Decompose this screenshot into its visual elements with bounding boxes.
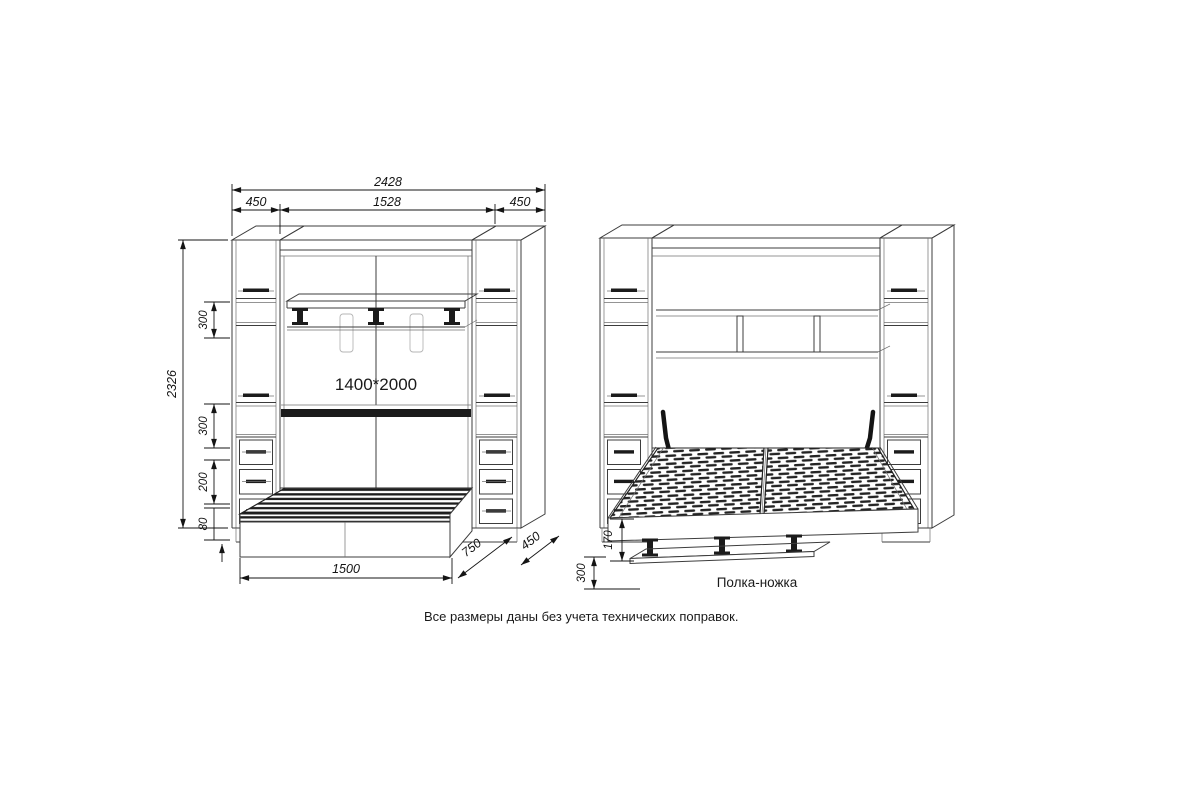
- dim-total-width-label: 2428: [373, 175, 402, 189]
- bed-leg: [642, 539, 658, 557]
- niche-shelf-unit: [656, 304, 890, 358]
- closed-left-cabinet-shelves: [236, 289, 276, 524]
- dim-total-height: 2326: [165, 240, 228, 528]
- dim-platform-height-label: 170: [603, 530, 615, 550]
- shelf-bracket: [292, 308, 308, 325]
- dim-center-width-label: 1528: [373, 195, 401, 209]
- closed-bed-base-bench: [240, 488, 472, 557]
- bed-size-label: 1400*2000: [335, 375, 417, 394]
- dim-cabinet-depth: 450: [518, 529, 559, 565]
- dim-left-cabinet-width-label: 450: [246, 195, 267, 209]
- technical-drawing: 1400*2000 2428 450 1528: [0, 0, 1200, 800]
- front-shelf-with-brackets: [287, 294, 477, 330]
- dim-base-length: 1500: [240, 558, 452, 584]
- shelf-leg-assembly: Полка-ножка: [630, 535, 830, 591]
- dim-right-cabinet-width-label: 450: [510, 195, 531, 209]
- drawing-sheet: 1400*2000 2428 450 1528: [0, 0, 1200, 800]
- dim-section-widths: 450 1528 450: [232, 195, 545, 234]
- shelf-bracket: [444, 308, 460, 325]
- dim-plinth-height-label: 80: [198, 517, 210, 530]
- dim-shelf-gap-upper-label: 300: [198, 310, 210, 330]
- closed-right-cabinet-shelves: [476, 289, 517, 524]
- shelf-leg-label: Полка-ножка: [717, 575, 798, 590]
- dim-shelf-leg-height-label: 300: [576, 563, 588, 583]
- dim-cabinet-depth-label: 450: [518, 529, 543, 553]
- note-text: Все размеры даны без учета технических п…: [424, 609, 738, 624]
- shelf-bracket: [368, 308, 384, 325]
- dim-shelf-gaps: 300 300 200 80: [198, 302, 230, 562]
- open-view-drawing: Полка-ножка 170 300: [576, 225, 954, 590]
- dim-drawer-zone-label: 200: [198, 472, 210, 493]
- dim-total-height-label: 2326: [165, 370, 179, 399]
- closed-view-drawing: 1400*2000 2428 450 1528: [165, 175, 559, 584]
- dim-shelf-gap-middle-label: 300: [198, 416, 210, 436]
- closed-bed-front-panel: 1400*2000: [280, 250, 477, 488]
- dark-mid-band: [281, 409, 471, 417]
- open-top-bridge: [652, 248, 890, 448]
- open-bed-platform: [608, 447, 918, 541]
- dim-base-length-label: 1500: [332, 562, 360, 576]
